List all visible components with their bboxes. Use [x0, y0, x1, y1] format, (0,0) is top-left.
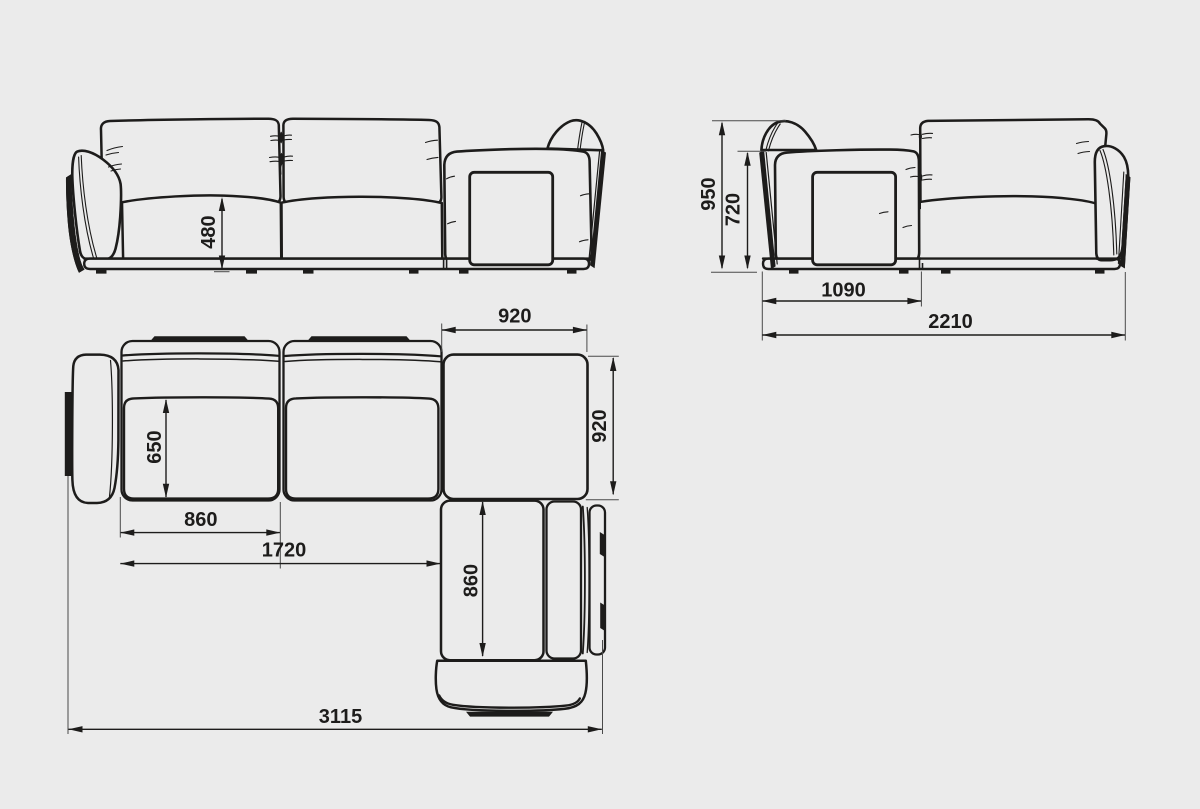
svg-text:720: 720 [723, 193, 745, 226]
svg-text:3115: 3115 [319, 706, 362, 728]
svg-text:480: 480 [198, 215, 220, 248]
svg-text:860: 860 [461, 564, 483, 597]
svg-text:1090: 1090 [821, 280, 866, 302]
svg-text:920: 920 [589, 409, 611, 442]
svg-text:920: 920 [498, 306, 531, 328]
svg-text:1720: 1720 [262, 540, 307, 562]
svg-text:860: 860 [184, 509, 217, 531]
svg-text:650: 650 [144, 430, 166, 463]
svg-text:950: 950 [698, 177, 720, 210]
svg-text:2210: 2210 [928, 311, 973, 333]
